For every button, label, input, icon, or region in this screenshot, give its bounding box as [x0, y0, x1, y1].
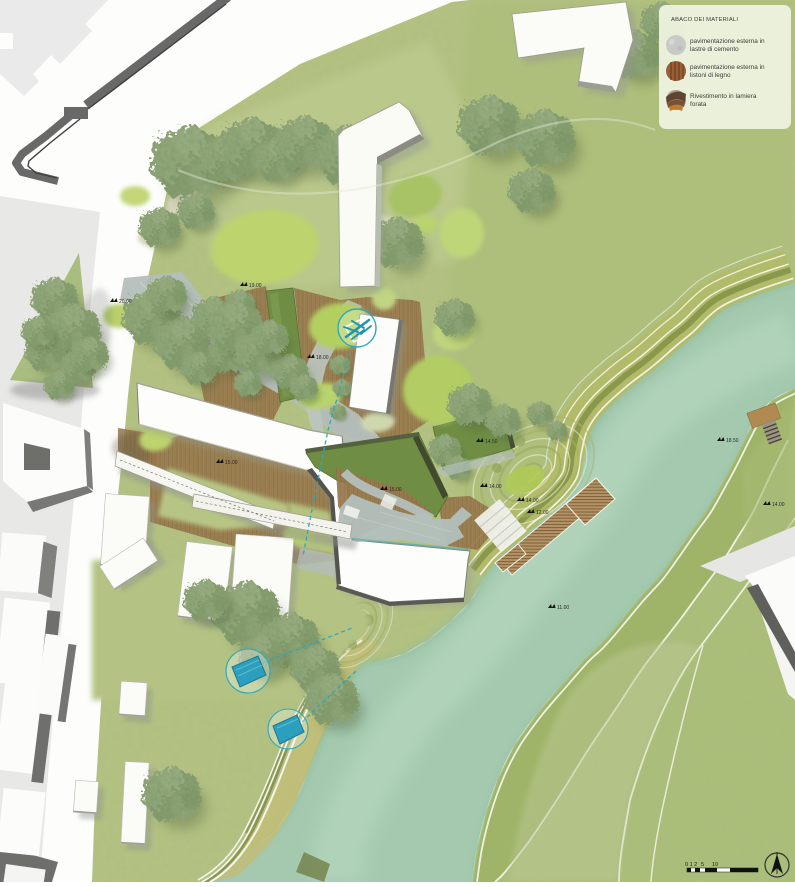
svg-text:lastre di cemento: lastre di cemento: [690, 46, 739, 53]
svg-text:11.00: 11.00: [557, 605, 569, 611]
svg-text:14.50: 14.50: [485, 439, 498, 445]
svg-text:15.00: 15.00: [389, 487, 402, 493]
svg-text:15.00: 15.00: [225, 460, 238, 466]
svg-text:0 1 2: 0 1 2: [685, 862, 697, 868]
svg-text:14.00: 14.00: [526, 498, 539, 504]
svg-text:forata: forata: [690, 101, 707, 108]
svg-text:18.50: 18.50: [726, 438, 739, 444]
svg-text:18.00: 18.00: [316, 355, 329, 361]
svg-text:Rivestimento in lamiera: Rivestimento in lamiera: [690, 93, 757, 100]
svg-text:12.00: 12.00: [536, 510, 549, 516]
svg-text:5: 5: [701, 862, 704, 868]
svg-text:14.00: 14.00: [772, 502, 785, 508]
svg-text:pavimentazione esterna in: pavimentazione esterna in: [690, 38, 765, 45]
svg-text:20.00: 20.00: [119, 299, 132, 305]
svg-text:14.00: 14.00: [489, 484, 502, 490]
svg-text:listoni di legno: listoni di legno: [690, 72, 731, 79]
svg-text:pavimentazione esterna in: pavimentazione esterna in: [690, 64, 765, 71]
svg-text:19.00: 19.00: [249, 283, 262, 289]
svg-text:ABACO DEI MATERIALI: ABACO DEI MATERIALI: [671, 17, 738, 23]
svg-text:10: 10: [712, 862, 718, 868]
